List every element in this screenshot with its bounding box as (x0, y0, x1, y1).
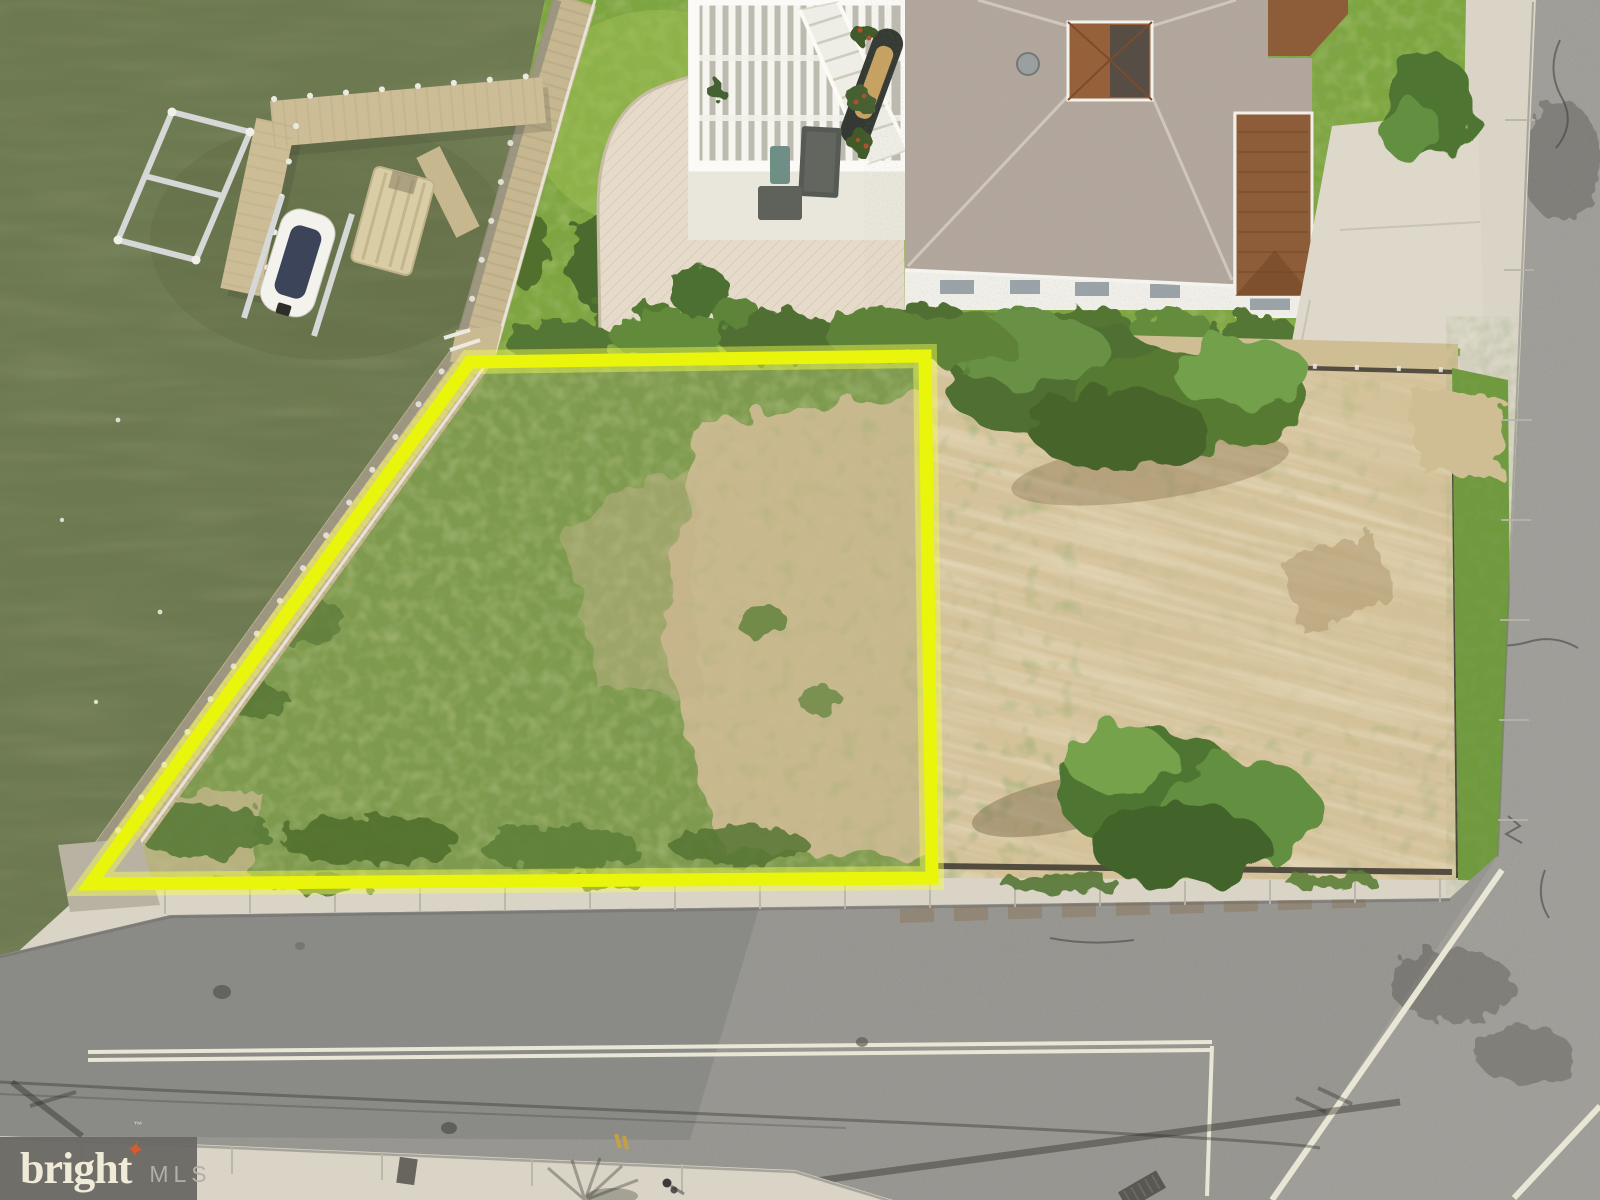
cupola (1068, 22, 1152, 100)
brightmls-watermark: bright✦™ MLS (0, 1137, 197, 1200)
aerial-photo: bright✦™ MLS (0, 0, 1600, 1200)
trademark-symbol: ™ (133, 1120, 142, 1130)
watermark-brand: bright✦™ (20, 1147, 140, 1191)
sparkle-icon: ✦ (125, 1138, 145, 1162)
roof-brown-porch (1235, 113, 1312, 297)
house (905, 0, 1348, 318)
watermark-suffix: MLS (149, 1161, 211, 1188)
roof-vent (1017, 53, 1039, 75)
watermark-brand-text: bright (20, 1144, 131, 1193)
